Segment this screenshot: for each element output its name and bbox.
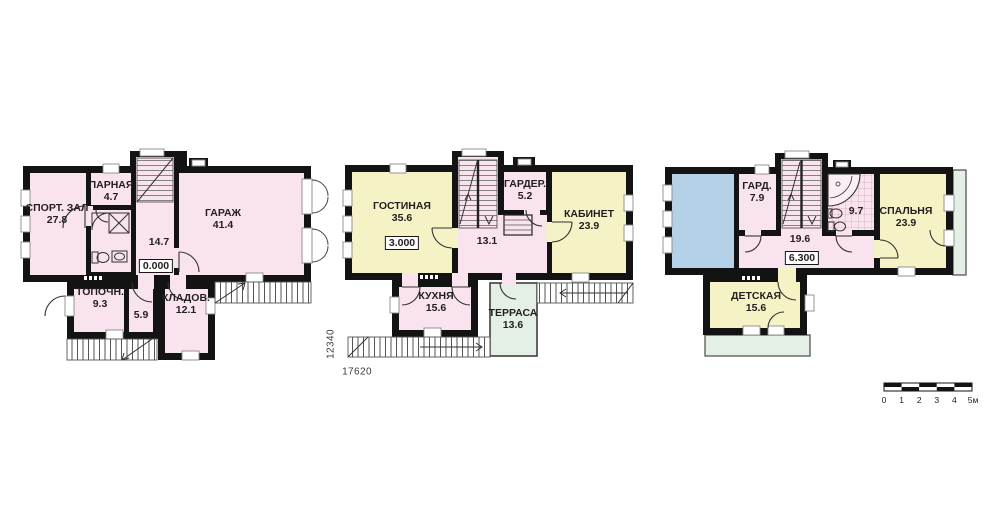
- stairs-icon: [137, 158, 173, 202]
- room-label-living: ГОСТИНАЯ 35.6: [373, 200, 431, 224]
- room-label-hall-19: 19.6: [790, 233, 810, 245]
- elevation-mark-ground: 0.000: [139, 259, 173, 273]
- floor-plans-page: СПОРТ. ЗАЛ 27.8 ПАРНАЯ 4.7 14.7 0.000 ГА…: [0, 0, 1000, 530]
- room-label-kids: ДЕТСКАЯ 15.6: [731, 290, 781, 314]
- room-label-bedroom: СПАЛЬНЯ 23.9: [880, 205, 933, 229]
- dimension-horizontal: 17620: [342, 367, 372, 378]
- room-label-garage: ГАРАЖ 41.4: [205, 207, 241, 231]
- room-label-bathroom: 9.7: [849, 205, 864, 217]
- scale-tick-0: 0: [882, 395, 887, 405]
- room-label-sauna: ПАРНАЯ 4.7: [89, 179, 134, 203]
- scale-tick-2: 2: [917, 395, 922, 405]
- room-label-59: 5.9: [134, 309, 149, 321]
- scale-tick-4: 4: [952, 395, 957, 405]
- room-label-wardrobe-1: ГАРДЕР. 5.2: [504, 178, 546, 202]
- void-over-living-fill: [672, 174, 734, 268]
- stairs-icon: [459, 160, 497, 228]
- room-label-boiler: ТОПОЧН. 9.3: [76, 286, 124, 310]
- elevation-mark-second: 6.300: [785, 251, 819, 265]
- stairs-icon: [782, 160, 821, 228]
- room-label-storage: КЛАДОВ. 12.1: [162, 292, 210, 316]
- side-balcony-deck: [953, 170, 966, 275]
- scale-tick-3: 3: [934, 395, 939, 405]
- room-label-hall-13: 13.1: [477, 235, 497, 247]
- bottom-balcony-deck: [705, 335, 810, 356]
- scale-bar: [884, 383, 972, 391]
- room-label-hall-area: 14.7: [149, 236, 169, 248]
- scale-tick-5: 5м: [968, 395, 979, 405]
- room-label-terrace: ТЕРРАСА 13.6: [489, 307, 538, 331]
- room-label-wardrobe-2: ГАРД. 7.9: [742, 180, 772, 204]
- scale-tick-1: 1: [899, 395, 904, 405]
- elevation-mark-first: 3.000: [385, 236, 419, 250]
- garage-door-icons: [312, 180, 328, 262]
- room-label-office: КАБИНЕТ 23.9: [564, 208, 614, 232]
- room-garage-fill: [179, 173, 304, 275]
- plan-ground-floor: [21, 149, 328, 360]
- dimension-vertical: 12340: [326, 329, 337, 359]
- room-label-kitchen: КУХНЯ 15.6: [418, 290, 453, 314]
- room-label-sport-hall: СПОРТ. ЗАЛ 27.8: [25, 202, 89, 226]
